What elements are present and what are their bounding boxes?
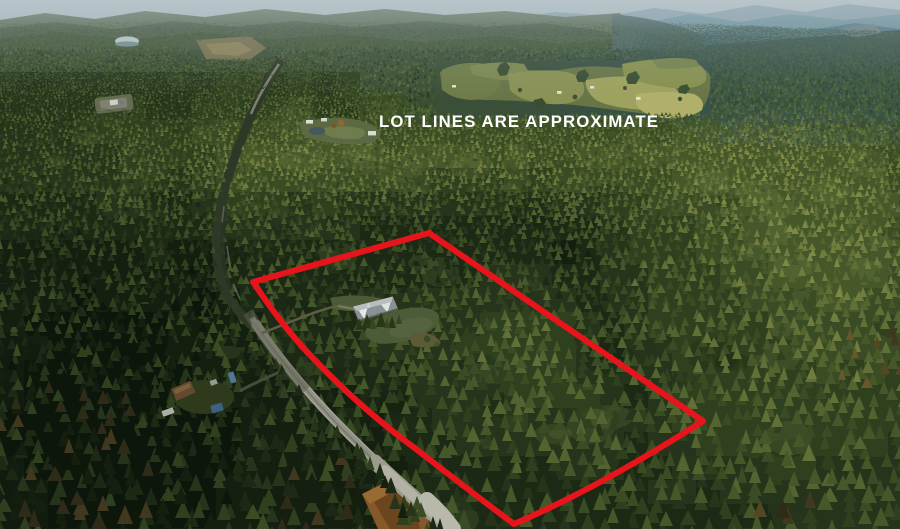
svg-text:LOT LINES ARE APPROXIMATE: LOT LINES ARE APPROXIMATE	[379, 112, 659, 131]
